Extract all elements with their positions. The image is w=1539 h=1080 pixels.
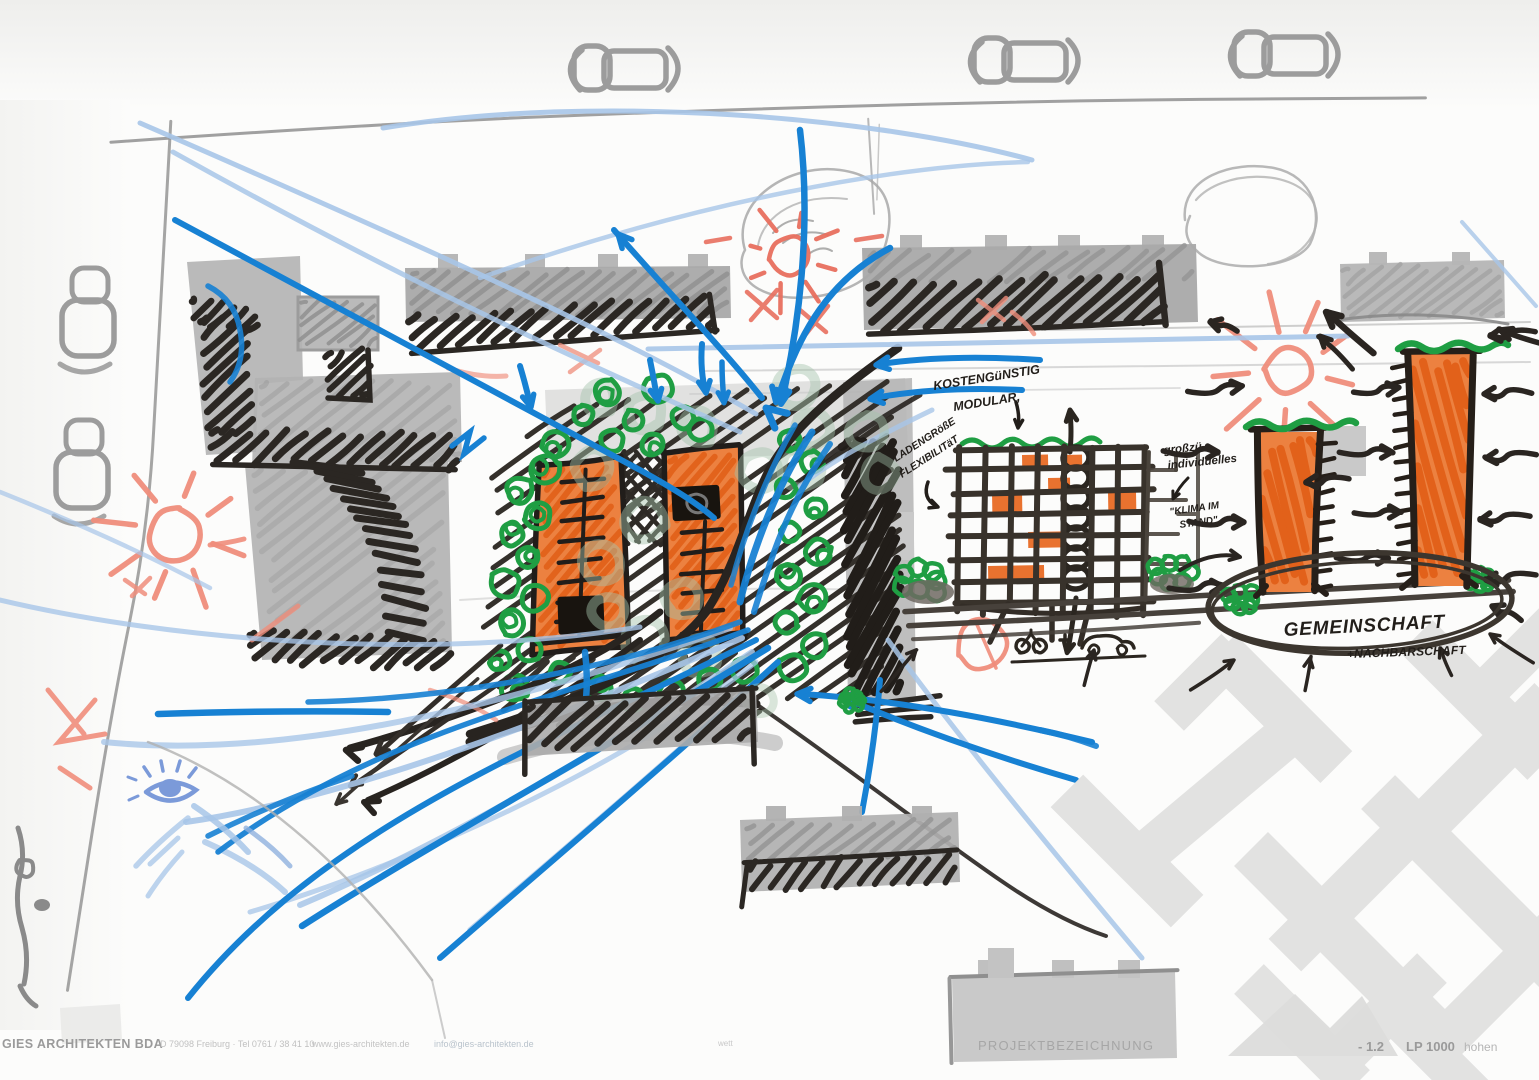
svg-text:www.gies-architekten.de: www.gies-architekten.de <box>311 1039 410 1049</box>
svg-text:GIES ARCHITEKTEN BDA: GIES ARCHITEKTEN BDA <box>2 1037 163 1051</box>
svg-text:- 1.2: - 1.2 <box>1358 1039 1384 1054</box>
svg-text:PROJEKTBEZEICHNUNG: PROJEKTBEZEICHNUNG <box>978 1038 1154 1053</box>
svg-text:hohen: hohen <box>1464 1040 1497 1054</box>
svg-text:D 79098 Freiburg · Tel 0761: D 79098 Freiburg · Tel 0761 / 38 41 10 <box>160 1039 314 1049</box>
svg-text:wett: wett <box>717 1039 733 1048</box>
svg-text:LP 1000: LP 1000 <box>1406 1039 1455 1054</box>
svg-text:info@gies-architekten.de: info@gies-architekten.de <box>434 1039 534 1049</box>
